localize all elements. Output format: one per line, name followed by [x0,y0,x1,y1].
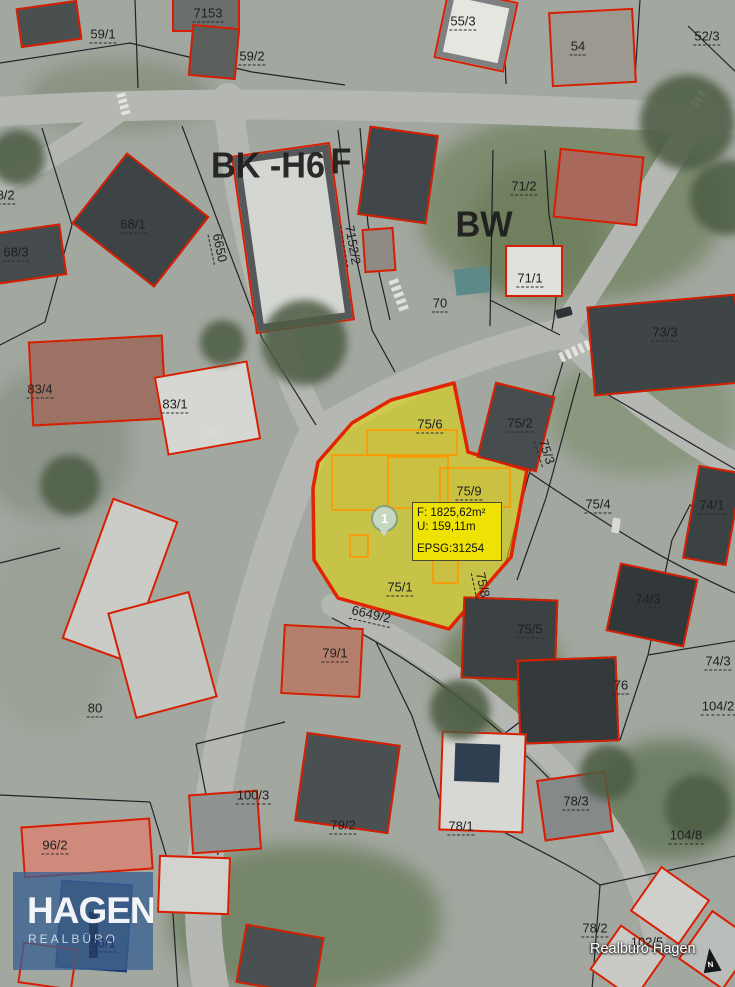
building [454,266,491,295]
parcel-label: 68/1 [119,217,146,234]
building [586,294,735,397]
north-letter: N [707,960,714,970]
parcel-label: 78/3 [562,794,589,811]
parcel-label: 74/1 [698,498,725,515]
area-value: F: 1825,62m² [417,506,497,520]
building [157,855,231,915]
building [517,656,620,744]
building [188,24,240,80]
parcel-marker-pin[interactable]: 1 [371,505,398,532]
building [548,8,637,87]
perimeter-value: U: 159,11m [417,520,497,534]
parcel-label: 78/2 [581,921,608,938]
parcel-label: 52/3 [693,29,720,46]
parcel-label: 70 [432,296,448,313]
zone-label: BK -H6 [210,145,326,188]
tree [430,680,490,740]
tree [200,320,245,365]
parcel-label: 79/1 [321,646,348,663]
tree [640,75,735,170]
parcel-label: 55/3 [449,14,476,31]
marker-number: 1 [381,511,388,526]
map-canvas: 715359/159/255/35452/368/268/168/3665083… [0,0,735,987]
parcel-label: 71/1 [516,271,543,288]
parcel-label: 104/8 [669,828,704,845]
parcel-label: 80 [87,701,103,718]
parcel-label: 100/3 [236,788,271,805]
infobox-spacer [417,534,497,542]
parcel-label: 78/1 [447,819,474,836]
parcel-label: 75/5 [516,622,543,639]
building [553,148,645,227]
north-arrow-icon: N [700,947,721,973]
parcel-label: 75/4 [584,497,611,514]
parcel-label: 75/6 [416,417,443,434]
parcel-label: 75/2 [506,416,533,433]
zone-label: BW [455,204,514,247]
tree [262,300,347,385]
parcel-label: 54 [570,39,586,56]
parcel-label: 75/1 [386,580,413,597]
tree [40,455,100,515]
parcel-label: 7153 [193,6,224,23]
building [16,0,83,48]
parcel-label: 83/4 [26,382,53,399]
tree [580,745,635,800]
zone-label: F [330,141,353,184]
parcel-label: 75/9 [455,484,482,501]
building [28,335,167,427]
parcel-label: 68/2 [0,188,16,205]
parcel-label: 68/3 [2,245,29,262]
epsg-value: EPSG:31254 [417,542,497,556]
solar-panel [454,743,500,783]
parcel-label: 59/1 [89,27,116,44]
building [357,126,439,225]
measurement-infobox: F: 1825,62m² U: 159,11m EPSG:31254 [412,502,502,561]
parcel-label: 76 [613,678,629,695]
parcel-label: 83/1 [161,397,188,414]
parcel-label: 96/1 [89,936,116,953]
parcel-label: 74/3 [704,654,731,671]
building [20,818,153,879]
parcel-label: 59/2 [238,49,265,66]
parcel-label: 104/2 [701,699,735,716]
parcel-label: 71/2 [510,179,537,196]
hagen-logo: HAGEN REALBÜRO [13,872,153,970]
logo-title: HAGEN [27,890,153,932]
parcel-label: 73/3 [651,325,678,342]
parcel-label: 79/2 [329,818,356,835]
attribution-text: Realbüro Hagen [590,941,696,957]
parcel-label: 96/2 [41,838,68,855]
parcel-label: 74/3 [634,592,661,609]
building [362,227,397,273]
